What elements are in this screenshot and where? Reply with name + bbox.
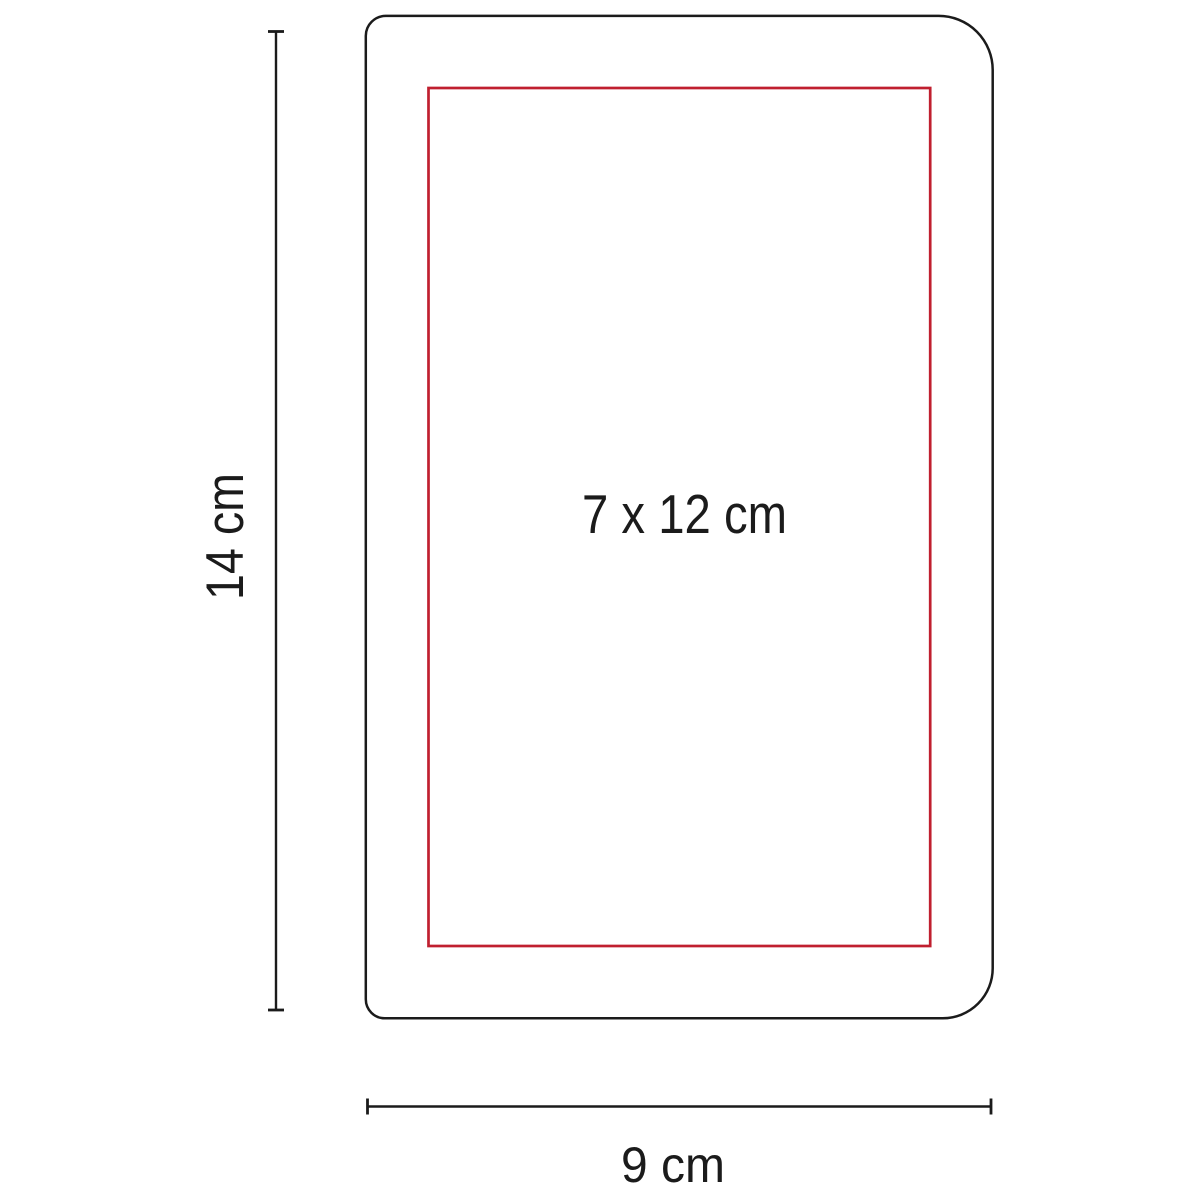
svg-text:9 cm: 9 cm xyxy=(621,1137,725,1193)
svg-text:14 cm: 14 cm xyxy=(196,473,255,600)
svg-text:7 x 12 cm: 7 x 12 cm xyxy=(582,483,787,545)
